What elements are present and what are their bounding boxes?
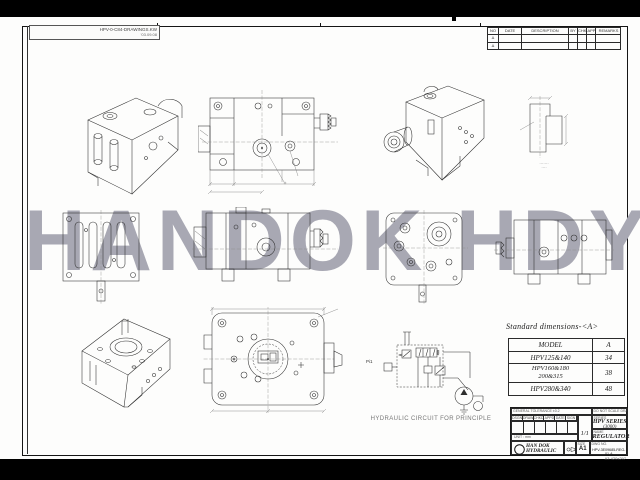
side-view-drawing-2 xyxy=(494,212,616,292)
std-value: 38 xyxy=(593,364,625,383)
rev-col-date: DATE xyxy=(499,27,522,35)
revision-table: NO DATE DESCRIPTION BY CHK APP REMARKS Δ… xyxy=(487,27,621,51)
projection-symbol-icon xyxy=(566,446,576,453)
rev-col-remarks: REMARKS xyxy=(596,27,621,35)
company-line2: HYDRAULIC xyxy=(526,449,556,454)
scale-value: 1/1 xyxy=(579,430,592,437)
rev-col-app: APP xyxy=(587,27,596,35)
rev-no: Δ xyxy=(488,35,499,43)
drawing-number: HPV-3E09685-REG-01-A xyxy=(591,448,628,456)
fold-tick xyxy=(480,23,481,27)
signature-body xyxy=(511,421,578,434)
std-value: 34 xyxy=(593,352,625,364)
revision-row: Δ xyxy=(488,42,621,50)
std-col-a: A xyxy=(593,339,625,352)
dwg-tag: DWG NO. xyxy=(591,442,628,446)
circuit-port-label: Pi1 xyxy=(366,359,373,364)
std-model-line2: 200&315 xyxy=(509,373,592,381)
std-row: HPV125&140 34 xyxy=(509,352,625,364)
drawing-no-cell: DWG NO. HPV-3E09685-REG-01-A xyxy=(590,441,629,456)
view-iso-top-left xyxy=(58,88,193,208)
revision-row: Δ xyxy=(488,35,621,43)
view-ortho-top-center xyxy=(198,84,343,209)
centering-mark xyxy=(452,17,456,21)
rev-col-no: NO xyxy=(488,27,499,35)
iso-drawing-3 xyxy=(62,305,177,417)
company-logo xyxy=(514,444,525,455)
part-name-cell: NAME REGULATOR xyxy=(592,429,629,442)
part-name: REGULATOR xyxy=(593,434,628,440)
view-side-mid-center xyxy=(192,207,340,300)
drawing-sheet: HPV-0-C84-DRAWINGS.KW '03.09.08 NO DATE … xyxy=(0,17,640,459)
std-dimensions-table: MODEL A HPV125&140 34 HPV160&180200&315 … xyxy=(508,338,625,396)
std-row: HPV160&180200&315 38 xyxy=(509,364,625,383)
view-detail-section xyxy=(516,92,572,165)
drawing-page: HPV-0-C84-DRAWINGS.KW '03.09.08 NO DATE … xyxy=(0,0,640,480)
rev-no: Δ xyxy=(488,42,499,50)
std-model-line1: HPV160&180 xyxy=(509,365,592,373)
revision-header-row: NO DATE DESCRIPTION BY CHK APP REMARKS xyxy=(488,27,621,35)
front-view-drawing xyxy=(202,307,350,415)
size-cell: SIZE A1 xyxy=(576,441,591,456)
scale-cell: 1/1 xyxy=(578,415,593,442)
back-view-drawing xyxy=(383,210,468,305)
circuit-caption: HYDRAULIC CIRCUIT FOR PRINCIPLE xyxy=(366,416,496,422)
detail-note: ······· ···· xyxy=(516,162,572,170)
iso-drawing-1 xyxy=(58,88,193,203)
top-view-drawing xyxy=(60,210,145,305)
std-row: HPV280&340 48 xyxy=(509,383,625,396)
size-value: A1 xyxy=(577,446,590,452)
rev-col-by: BY xyxy=(569,27,578,35)
std-col-model: MODEL xyxy=(509,339,593,352)
detail-drawing xyxy=(516,92,572,160)
view-hydraulic-circuit xyxy=(372,330,494,421)
side-view-drawing-1 xyxy=(192,207,340,295)
file-label-date: '03.09.08 xyxy=(30,32,157,37)
file-label-box: HPV-0-C84-DRAWINGS.KW '03.09.08 xyxy=(29,25,160,40)
rev-col-chk: CHK xyxy=(578,27,587,35)
std-model: HPV280&340 xyxy=(509,383,593,396)
view-front-bottom-center xyxy=(202,307,350,420)
view-top-mid-left xyxy=(60,210,145,310)
view-side-mid-far-right xyxy=(494,212,616,297)
title-block: GENERAL TOLERANCE ±0.2 DO NOT SCALE DRAW… xyxy=(510,407,627,455)
std-value: 48 xyxy=(593,383,625,396)
sheet-size-note: A3 420x297 xyxy=(556,456,626,461)
std-dimensions-title: Standard dimensions-<A> xyxy=(506,322,598,331)
detail-note-line2: ···· xyxy=(516,166,572,170)
view-iso-top-right xyxy=(372,76,490,199)
fold-tick xyxy=(320,23,321,27)
circuit-drawing xyxy=(372,330,494,416)
company-cell: HAN DOK HYDRAULIC xyxy=(511,441,564,456)
std-model: HPV125&140 xyxy=(509,352,593,364)
std-header-row: MODEL A xyxy=(509,339,625,352)
view-back-mid-right xyxy=(383,210,468,310)
projection-cell xyxy=(564,441,577,456)
series-cell: SERIES HPV SERIES (3000) xyxy=(592,415,629,430)
view-iso-bottom-left xyxy=(62,305,177,422)
ortho-drawing-top xyxy=(198,84,343,204)
rev-col-desc: DESCRIPTION xyxy=(522,27,569,35)
iso-drawing-2 xyxy=(372,76,490,194)
